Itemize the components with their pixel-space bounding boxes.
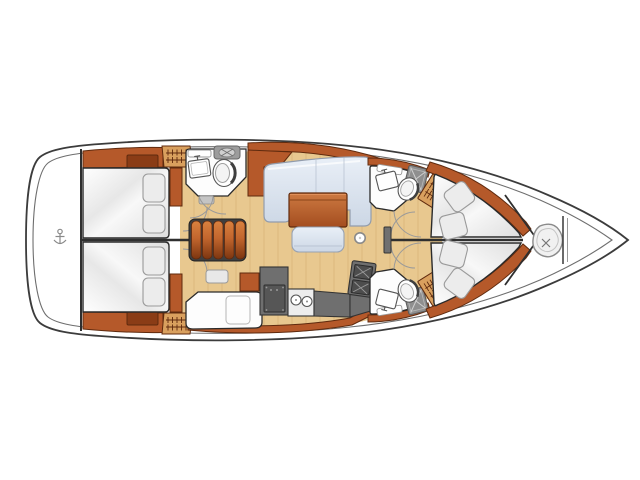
wardrobe <box>170 168 182 206</box>
step-tread <box>192 221 202 259</box>
pillow <box>143 174 165 202</box>
galley-step <box>206 270 228 283</box>
folding-table <box>289 193 347 227</box>
step-tread <box>236 221 246 259</box>
toilet-icon <box>213 160 235 187</box>
white-counter <box>186 292 262 329</box>
boat-plan-svg <box>0 0 640 480</box>
worktop <box>314 291 350 317</box>
mast-post <box>355 233 365 243</box>
double-sink <box>288 289 314 316</box>
cushion <box>438 211 468 240</box>
galley-cabinet <box>240 273 259 291</box>
sink-cover <box>226 296 250 324</box>
step-tread <box>225 221 235 259</box>
bench-seat <box>292 227 344 252</box>
oven-unit <box>260 267 288 315</box>
step-tread <box>203 221 213 259</box>
vanity-unit <box>214 146 240 159</box>
yacht-layout-diagram <box>0 0 640 480</box>
companionway-steps <box>189 219 246 261</box>
hull-hatch <box>127 155 158 168</box>
rope-coil-icon <box>533 224 563 257</box>
corridor-wall-segment <box>384 227 391 253</box>
step-tread <box>214 221 224 259</box>
pillow <box>143 205 165 233</box>
